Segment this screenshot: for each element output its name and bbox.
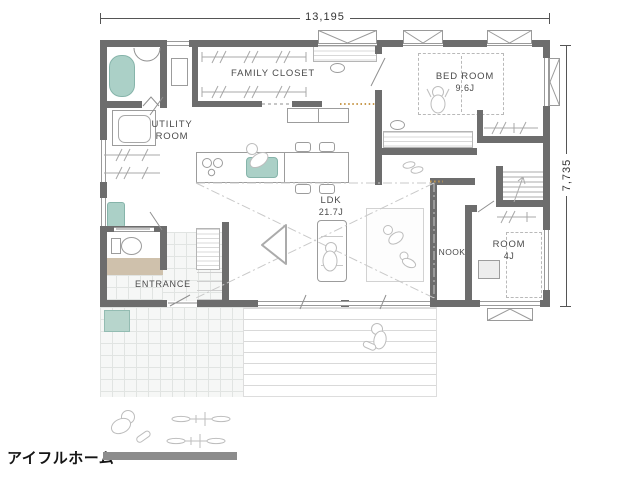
dimension-width-label: 13,195	[100, 11, 550, 23]
wood-deck	[243, 307, 437, 397]
wall	[292, 101, 322, 107]
sofa	[317, 220, 347, 282]
dining-chair	[295, 184, 311, 194]
wall	[477, 110, 483, 143]
wall	[496, 200, 543, 207]
doormat	[104, 310, 130, 332]
pantry-cabinet	[287, 108, 349, 123]
wall	[430, 185, 437, 300]
dining-chair	[319, 184, 335, 194]
window	[480, 301, 540, 306]
slipper-icon	[403, 161, 416, 169]
window	[403, 41, 443, 46]
dining-chair	[319, 142, 335, 152]
toilet-tank	[111, 238, 121, 254]
wall	[100, 40, 167, 47]
wall	[100, 40, 107, 140]
wall	[377, 148, 477, 155]
study-counter	[313, 45, 377, 62]
wall	[443, 40, 487, 47]
wall	[160, 40, 167, 108]
shoe-cabinet	[196, 228, 220, 270]
bedroom-desk	[383, 131, 473, 148]
room-desk	[478, 260, 500, 279]
bicycle-icons	[167, 412, 230, 448]
skateboard-icon	[136, 430, 152, 444]
wall	[430, 178, 475, 185]
sofa-cushion-line	[321, 236, 343, 237]
wall	[540, 300, 550, 307]
desk-chair	[390, 120, 405, 130]
wall	[375, 90, 382, 185]
floor-plan: 13,195 7,735 FAMILY CLOSET BED ROOM9.6J …	[0, 0, 640, 480]
wall	[189, 40, 318, 47]
play-tent-icon	[262, 225, 286, 264]
dimension-tick	[560, 306, 571, 307]
wall	[100, 300, 167, 307]
kitchen-sink	[246, 157, 278, 178]
brand-bar	[103, 452, 237, 460]
sofa-cushion-line	[321, 265, 343, 266]
window	[544, 58, 549, 106]
room-label-ldk: LDK21.7J	[301, 195, 361, 218]
counter-divider	[284, 153, 285, 182]
wall	[465, 205, 477, 212]
window	[487, 41, 532, 46]
wall	[100, 182, 107, 198]
brand-logo: アイフルホーム	[7, 447, 114, 468]
linen-shelf	[171, 58, 188, 86]
cabinet-divider	[318, 109, 319, 122]
slipper-icon	[411, 166, 424, 174]
wall	[222, 222, 229, 300]
wall	[543, 106, 550, 230]
window	[101, 198, 106, 226]
room-label-utility: UTILITY ROOM	[141, 119, 203, 143]
bathtub	[109, 55, 135, 97]
dimension-tick	[560, 45, 571, 46]
wall	[197, 300, 258, 307]
dining-chair	[295, 142, 311, 152]
toilet-bowl	[121, 237, 142, 255]
window	[258, 301, 430, 306]
room-label-room4j: ROOM4J	[480, 239, 538, 262]
window	[101, 140, 106, 182]
wall	[480, 136, 543, 143]
stairs	[503, 172, 543, 202]
room-label-nook: NOOK	[432, 247, 472, 258]
stairs-up-arrow	[514, 177, 525, 202]
room-label-bedroom: BED ROOM9.6J	[415, 71, 515, 94]
wall	[192, 101, 262, 107]
wall	[543, 40, 550, 58]
genkan-step	[104, 258, 163, 275]
rug	[366, 208, 424, 282]
room-label-entrance: ENTRANCE	[123, 279, 203, 290]
dimension-depth-label: 7,735	[561, 148, 573, 202]
room-label-family-closet: FAMILY CLOSET	[203, 68, 343, 80]
window	[544, 230, 549, 290]
wall	[192, 40, 198, 104]
wall	[100, 226, 107, 307]
window	[114, 227, 154, 232]
window	[167, 41, 189, 46]
wall	[160, 226, 167, 270]
vanity-sink	[107, 202, 125, 228]
wall	[430, 300, 480, 307]
window	[318, 41, 377, 46]
wall	[100, 101, 142, 108]
